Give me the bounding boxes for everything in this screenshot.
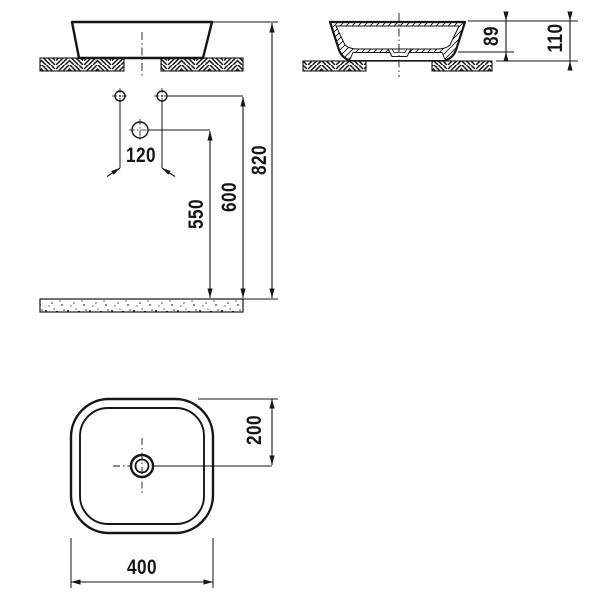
technical-drawing: 120 550 600 820 89 110 200 400: [0, 0, 600, 600]
side-counter-left: [303, 61, 366, 71]
dim-120-label: 120: [126, 144, 156, 168]
mixer-hole: [129, 119, 151, 141]
dim-200-line: [269, 399, 274, 465]
side-section-view: [303, 12, 578, 78]
dim-89-line: [503, 12, 508, 62]
dim-110-label: 110: [544, 23, 568, 52]
side-basin-bowl: [336, 26, 459, 49]
dim-400-label: 400: [127, 556, 157, 580]
dim-600-label: 600: [218, 182, 242, 212]
floor-line: [40, 299, 243, 312]
side-counter-right: [432, 61, 492, 71]
dim-110-line: [567, 12, 572, 71]
dim-820-label: 820: [248, 145, 272, 175]
front-counter-left: [40, 58, 124, 71]
drawing-svg: [0, 0, 600, 600]
dim-550-label: 550: [185, 199, 209, 229]
front-view: [40, 22, 243, 76]
front-counter-right: [161, 58, 243, 71]
dim-200-label: 200: [243, 415, 267, 445]
dim-89-label: 89: [480, 26, 504, 46]
